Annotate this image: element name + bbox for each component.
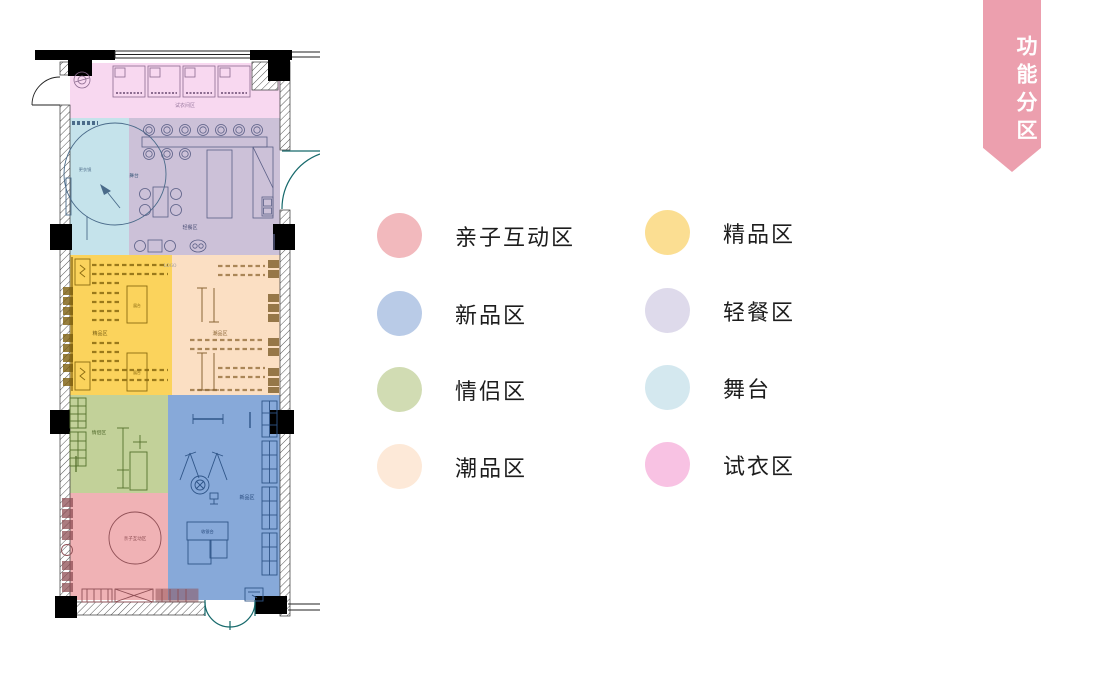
- legend-item-family: 亲子互动区: [377, 213, 575, 258]
- label-cashier: 收银台: [201, 528, 214, 535]
- legend-swatch-new: [377, 291, 422, 336]
- label-cafe: 轻餐区: [182, 224, 197, 231]
- label-stand-b: 展台: [133, 370, 141, 375]
- label-trend: 潮品区: [212, 330, 227, 337]
- legend-label-boutique: 精品区: [723, 217, 795, 249]
- label-family: 亲子互动区: [124, 535, 147, 542]
- legend-label-family: 亲子互动区: [455, 220, 575, 252]
- legend-label-fitting: 试衣区: [723, 449, 795, 481]
- legend-label-stage: 舞台: [723, 372, 771, 404]
- legend-label-trend: 潮品区: [455, 451, 527, 483]
- label-fitting: 试衣间区: [175, 102, 195, 109]
- legend-swatch-cafe: [645, 288, 690, 333]
- legend-label-cafe: 轻餐区: [723, 295, 795, 327]
- zone-boutique: [70, 255, 172, 395]
- zone-new: [168, 395, 280, 600]
- legend-item-boutique: 精品区: [645, 210, 795, 255]
- legend-swatch-stage: [645, 365, 690, 410]
- legend-item-stage: 舞台: [645, 365, 771, 410]
- zone-couple: [70, 395, 168, 493]
- legend-swatch-fitting: [645, 442, 690, 487]
- zone-fitting: [70, 63, 280, 118]
- legend-swatch-couple: [377, 367, 422, 412]
- label-boutique: 精品区: [92, 330, 107, 337]
- legend-item-couple: 情侣区: [377, 367, 527, 412]
- legend-item-trend: 潮品区: [377, 444, 527, 489]
- legend-item-cafe: 轻餐区: [645, 288, 795, 333]
- label-logo: LOGO: [164, 263, 178, 268]
- legend-label-couple: 情侣区: [455, 374, 527, 406]
- label-stand-a: 展台: [133, 303, 141, 308]
- label-stage-mirror: 更衣镜: [79, 166, 92, 173]
- title-ribbon: 功能分区: [983, 0, 1041, 172]
- legend-item-new: 新品区: [377, 291, 527, 336]
- legend-label-new: 新品区: [455, 298, 527, 330]
- zone-family: [70, 493, 168, 600]
- legend-item-fitting: 试衣区: [645, 442, 795, 487]
- slide: { "ribbon": { "label": "功能分区", "color": …: [0, 0, 1095, 675]
- label-new: 新品区: [239, 494, 254, 501]
- label-stage: 舞台: [129, 172, 139, 179]
- ribbon-title: 功能分区: [983, 26, 1041, 156]
- legend-swatch-trend: [377, 444, 422, 489]
- label-couple: 情侣区: [92, 429, 107, 436]
- legend-swatch-family: [377, 213, 422, 258]
- legend-swatch-boutique: [645, 210, 690, 255]
- floor-plan: 试衣间区 更衣镜 舞台 轻餐: [30, 38, 320, 638]
